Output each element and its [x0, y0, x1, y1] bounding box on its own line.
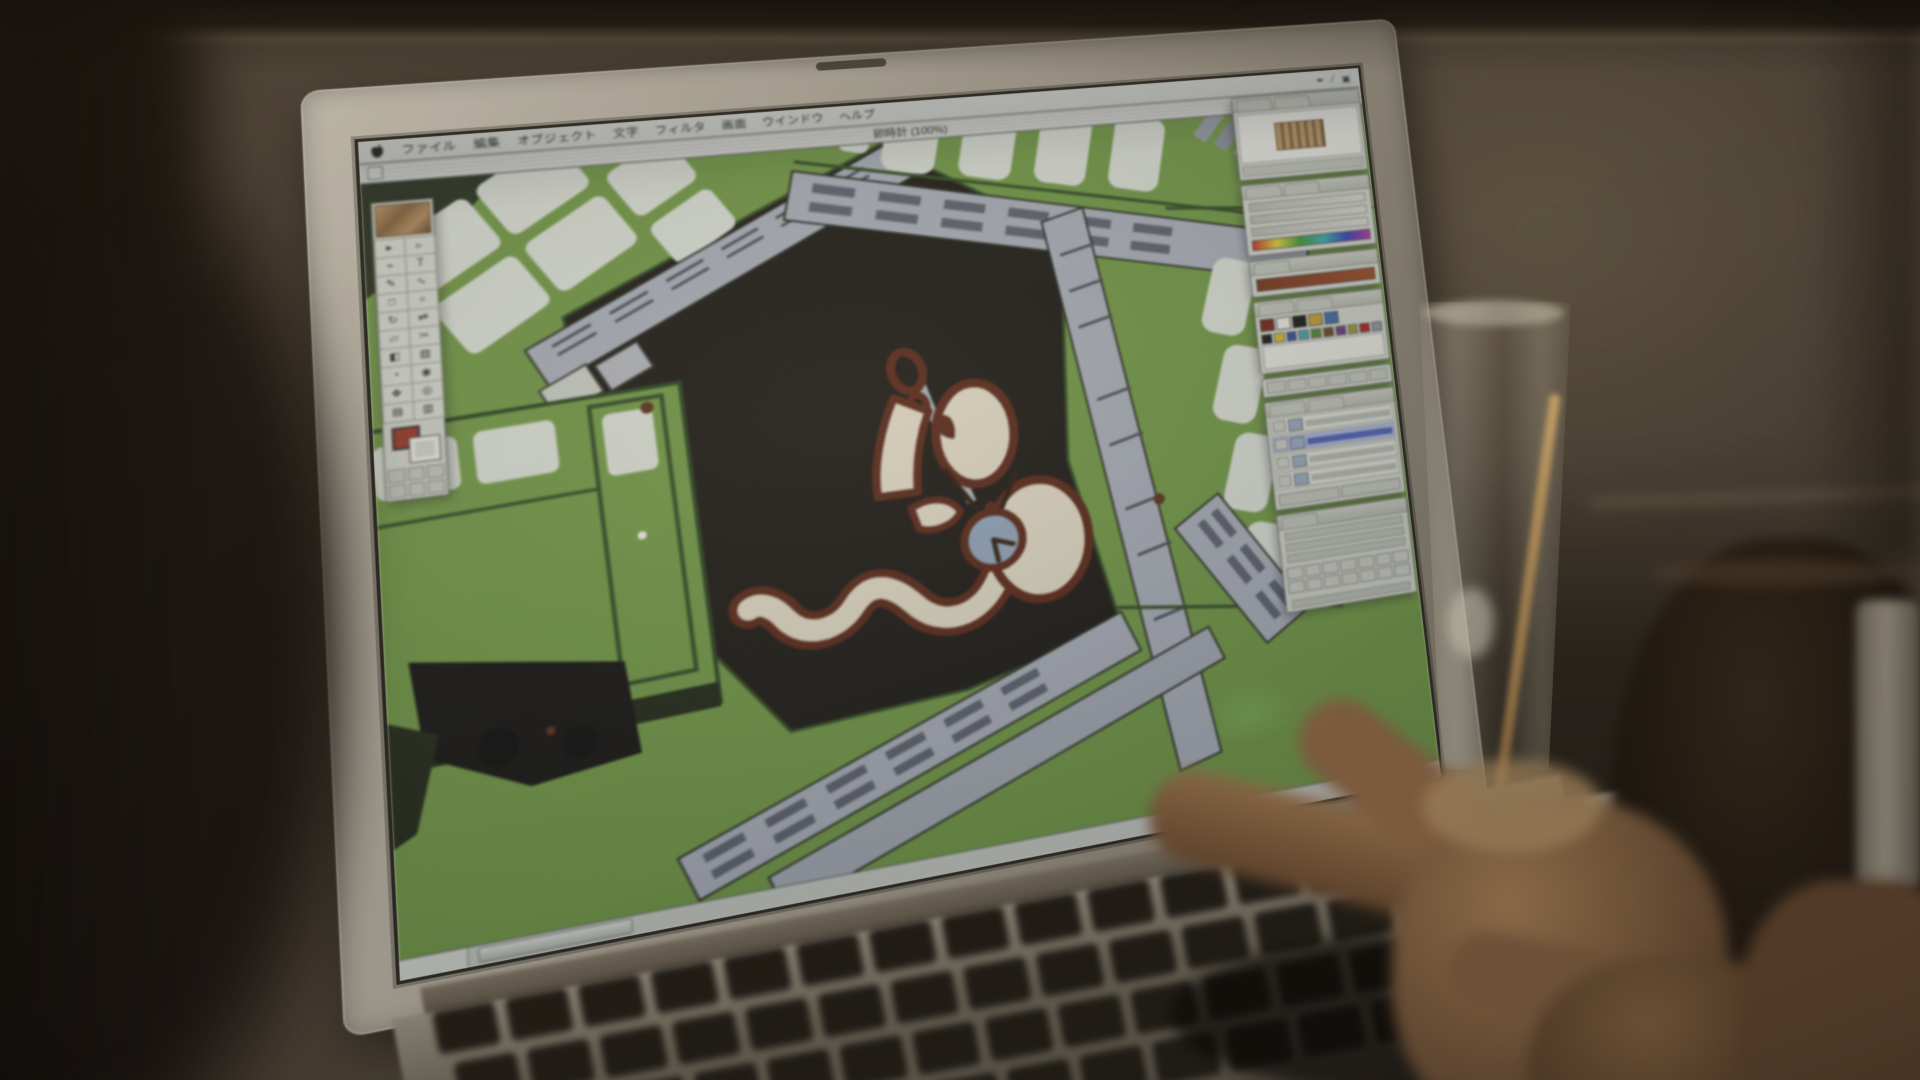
photo-scene: ファイル編集オブジェクト文字フィルタ画面ウインドウヘルプ ✒⁄▣ 卵時計 (10… — [0, 0, 1920, 1080]
typing-hands — [0, 0, 1920, 1080]
wrist — [1740, 880, 1920, 1080]
knuckle-highlight — [1422, 760, 1602, 852]
